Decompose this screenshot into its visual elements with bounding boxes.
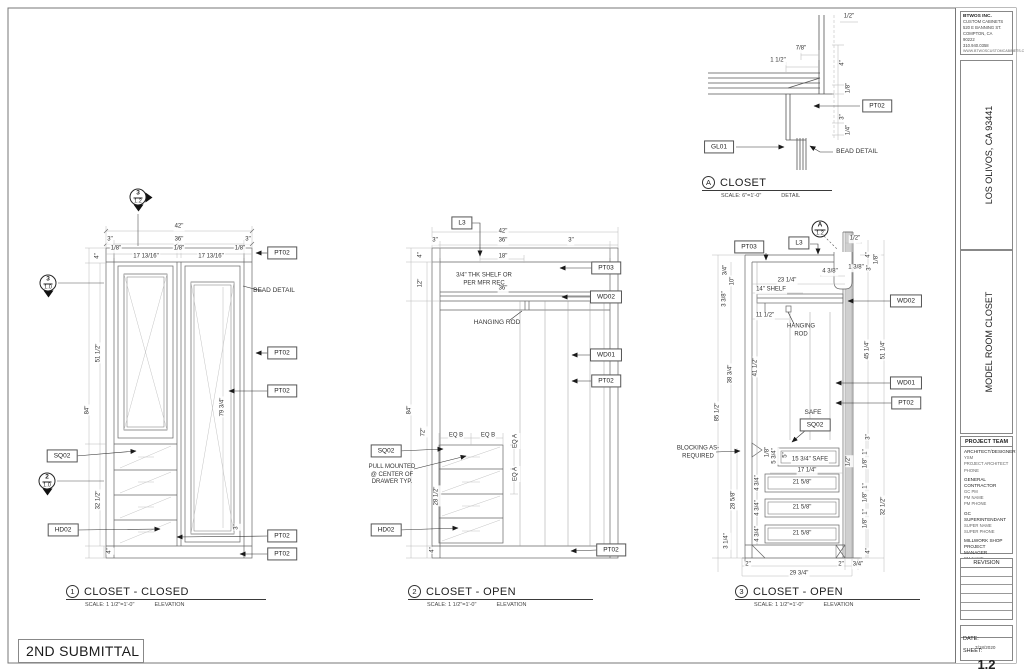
drawing-linework (0, 0, 1024, 672)
team-group-title: MILLWORK SHOP PROJECT MANAGER (964, 538, 1009, 556)
team-group-title: GENERAL CONTRACTOR (964, 477, 1009, 489)
room-or-area-label: ROOM OR AREA (960, 393, 962, 429)
project-location-block: PROJECT LOCATION LOS OLIVOS, CA 93441 (960, 60, 1013, 250)
sheet-number-field: SHEET: 1.2 (961, 638, 1012, 672)
team-group-line: PROJECT ARCHITECT (964, 461, 1009, 467)
revision-header: REVISION (961, 559, 1012, 568)
team-group-line: PM PHONE (964, 501, 1009, 507)
submittal-text: 2ND SUBMITTAL (26, 643, 139, 659)
project-team-header: PROJECT TEAM (961, 437, 1012, 447)
team-group-line: PHONE (964, 468, 1009, 474)
revision-row (961, 594, 1012, 603)
team-group: ARCHITECT/DESIGNER YSM PROJECT ARCHITECT… (961, 447, 1012, 475)
submittal-stamp: 2ND SUBMITTAL (18, 639, 144, 663)
team-group-title: GC SUPERINTENDANT (964, 511, 1009, 523)
room-or-area-value: MODEL ROOM CLOSET (984, 292, 994, 393)
revision-row (961, 568, 1012, 577)
company-info-block: BTWOS INC. CUSTOM CABINETS 520 E BANNING… (960, 11, 1013, 55)
revision-row (961, 603, 1012, 612)
date-sheet-block: DATE: 7/18/2020 SHEET: 1.2 (960, 625, 1013, 661)
revision-row (961, 577, 1012, 586)
room-or-area-block: ROOM OR AREA MODEL ROOM CLOSET (960, 250, 1013, 434)
revision-row (961, 585, 1012, 594)
project-team-block: PROJECT TEAM ARCHITECT/DESIGNER YSM PROJ… (960, 436, 1013, 554)
project-location-value: LOS OLIVOS, CA 93441 (984, 106, 994, 205)
sheet-label: SHEET: (963, 648, 982, 654)
sheet-number: 1.2 (963, 657, 1010, 672)
title-block: BTWOS INC. CUSTOM CABINETS 520 E BANNING… (955, 8, 1016, 663)
company-website: WWW.BTWOSCUSTOMCABINETS.COM (963, 49, 1010, 54)
elevation3-cabinet (742, 232, 862, 565)
revision-row (961, 611, 1012, 619)
date-field: DATE: 7/18/2020 (961, 626, 1012, 638)
team-group: GENERAL CONTRACTOR GC PM PM NAME PM PHON… (961, 475, 1012, 509)
team-group-line: SUPER PHONE (964, 529, 1009, 535)
revision-block: REVISION (960, 558, 1013, 620)
team-group: GC SUPERINTENDANT SUPER NAME SUPER PHONE (961, 509, 1012, 537)
project-location-label: PROJECT LOCATION (960, 199, 962, 245)
drawing-sheet: 1/2"7/8"1 1/2"4"1/8"PT023"1/4"GL01BEAD D… (0, 0, 1024, 672)
